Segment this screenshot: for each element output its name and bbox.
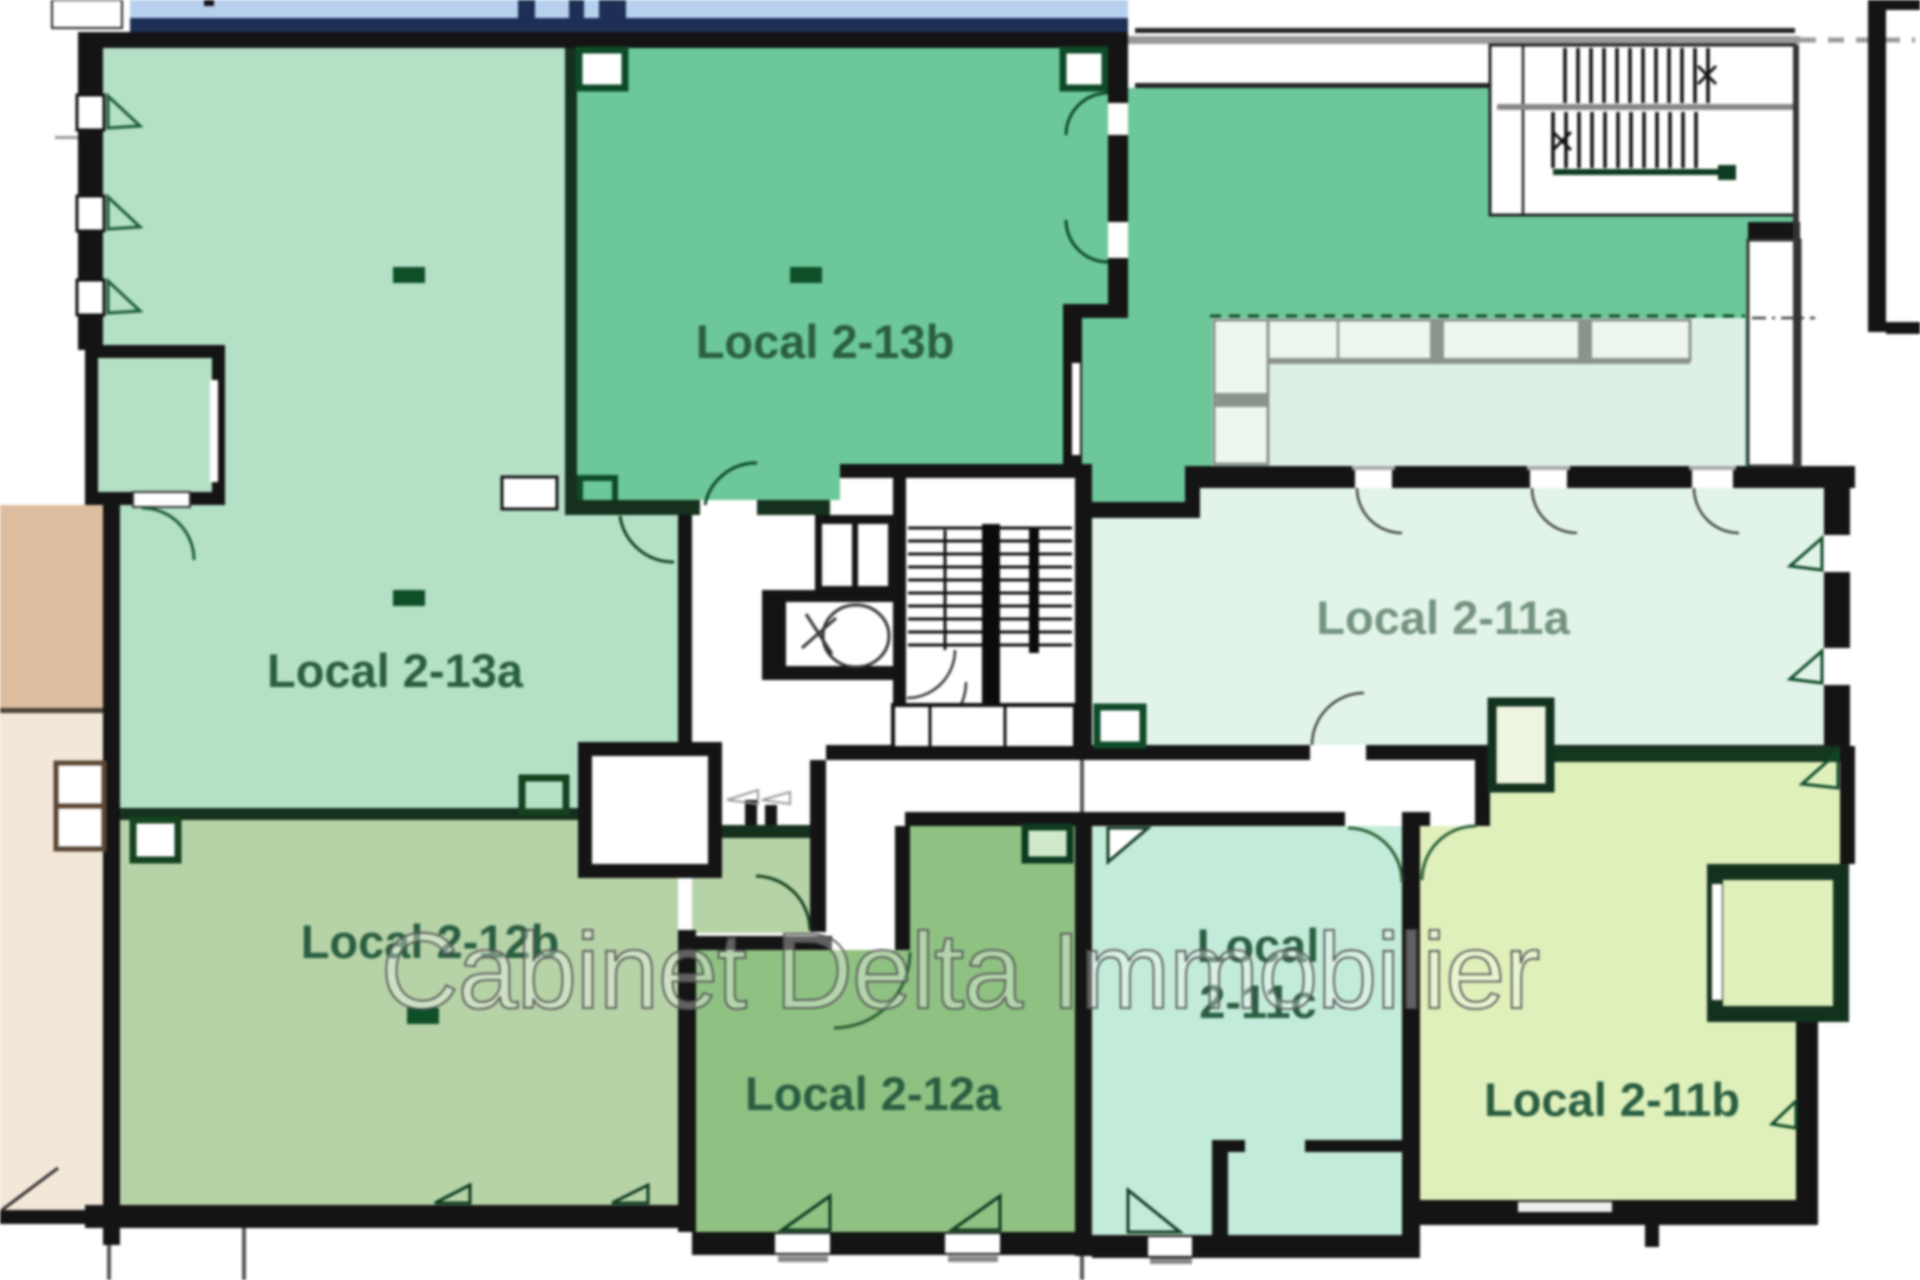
svg-text:Local 2-13b: Local 2-13b: [696, 315, 955, 368]
svg-text:Local 2-12a: Local 2-12a: [745, 1067, 1002, 1120]
svg-text:Local 2-11b: Local 2-11b: [1484, 1073, 1740, 1126]
svg-text:Local 2-11a: Local 2-11a: [1316, 591, 1570, 644]
svg-text:Cabinet Delta Immobilier: Cabinet Delta Immobilier: [381, 910, 1539, 1031]
svg-text:Local 2-13a: Local 2-13a: [267, 644, 524, 697]
